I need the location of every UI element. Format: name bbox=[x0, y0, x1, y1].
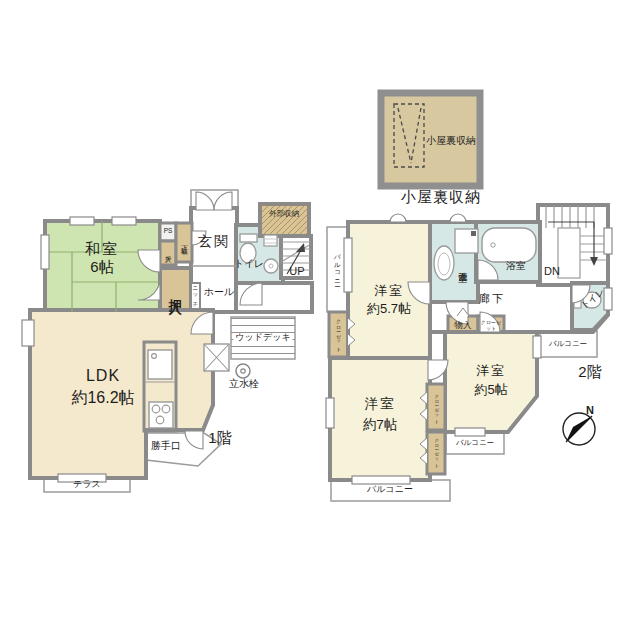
monoire-label: 物入 bbox=[455, 321, 472, 330]
oshiire-label: 押入 bbox=[168, 289, 182, 291]
wood-deck-label: ウッドデッキ bbox=[233, 333, 292, 342]
bathtub-icon bbox=[482, 228, 536, 262]
compass-icon bbox=[563, 413, 595, 445]
rissuisen-label: 立水栓 bbox=[229, 379, 259, 390]
hall-label: ホール bbox=[204, 287, 234, 298]
top-window-arc bbox=[450, 214, 466, 222]
yoshitsu5-size: 約5帖 bbox=[474, 383, 507, 397]
ps-label: PS bbox=[164, 228, 173, 235]
terrace-label: テラス bbox=[73, 480, 101, 489]
floor-plan: 小屋裏収納 小屋裏収納 和室 6帖 PS 押入 下駄箱 玄関 トイレ 外部収納 … bbox=[0, 0, 640, 640]
floor1-tag: 1階 bbox=[208, 430, 231, 446]
balcony-mid-label: バルコニー bbox=[456, 439, 494, 447]
washitsu-size: 6帖 bbox=[90, 259, 113, 275]
washitsu-label: 和室 bbox=[85, 241, 119, 257]
oshiire-small-box bbox=[160, 241, 176, 265]
yoshitsu57-size: 約5.7帖 bbox=[367, 302, 411, 316]
toilet-tank-icon bbox=[240, 234, 257, 242]
closet-west-label: クローゼット bbox=[335, 316, 340, 351]
balcony-west-label: バルコニー bbox=[334, 250, 341, 285]
yoshitsu7-size: 約7帖 bbox=[363, 418, 398, 432]
yokushitsu-label: 浴室 bbox=[506, 261, 526, 272]
yoshitsu5-label: 洋室 bbox=[476, 364, 506, 378]
floor2-tag: 2階 bbox=[578, 364, 601, 380]
senmenshitsu-label: 洗面室 bbox=[457, 265, 466, 268]
basin-icon bbox=[264, 259, 278, 273]
closet-2-label: クローゼット bbox=[434, 435, 439, 467]
floor-plan-drawing bbox=[0, 0, 640, 640]
top-window-arc bbox=[390, 214, 406, 222]
ldk-label: LDK bbox=[86, 368, 120, 385]
yoshitsu57-label: 洋室 bbox=[374, 284, 404, 298]
rouka-label: 廊下 bbox=[479, 293, 505, 305]
genkan-label: 玄関 bbox=[198, 234, 230, 249]
stairs-up-label: UP bbox=[289, 266, 304, 278]
yoshitsu7-label: 洋室 bbox=[365, 397, 396, 411]
compass-n-label: N bbox=[586, 405, 594, 417]
balcony-south-label: バルコニー bbox=[367, 485, 413, 494]
shelf-icon bbox=[264, 235, 277, 246]
stairs-down-label: DN bbox=[544, 266, 560, 278]
gaibu-shuno-label: 外部収納 bbox=[269, 210, 299, 218]
closet-small-label: クローゼット bbox=[481, 319, 502, 331]
ldk-size: 約16.2帖 bbox=[71, 390, 134, 407]
closet-1-label: クローゼット bbox=[434, 391, 439, 423]
balcony-east-label: バルコニー bbox=[549, 340, 587, 348]
oshiire-small-label: 押入 bbox=[165, 251, 171, 253]
getabako-label: 下駄箱 bbox=[181, 241, 188, 244]
niche-label: ニッチ bbox=[192, 283, 198, 305]
faucet-icon bbox=[236, 364, 250, 378]
katteguchi-label: 勝手口 bbox=[151, 441, 181, 452]
attic-caption: 小屋裏収納 bbox=[401, 189, 481, 205]
toilet-1f-label: トイレ bbox=[234, 259, 265, 270]
attic-label: 小屋裏収納 bbox=[426, 136, 476, 147]
